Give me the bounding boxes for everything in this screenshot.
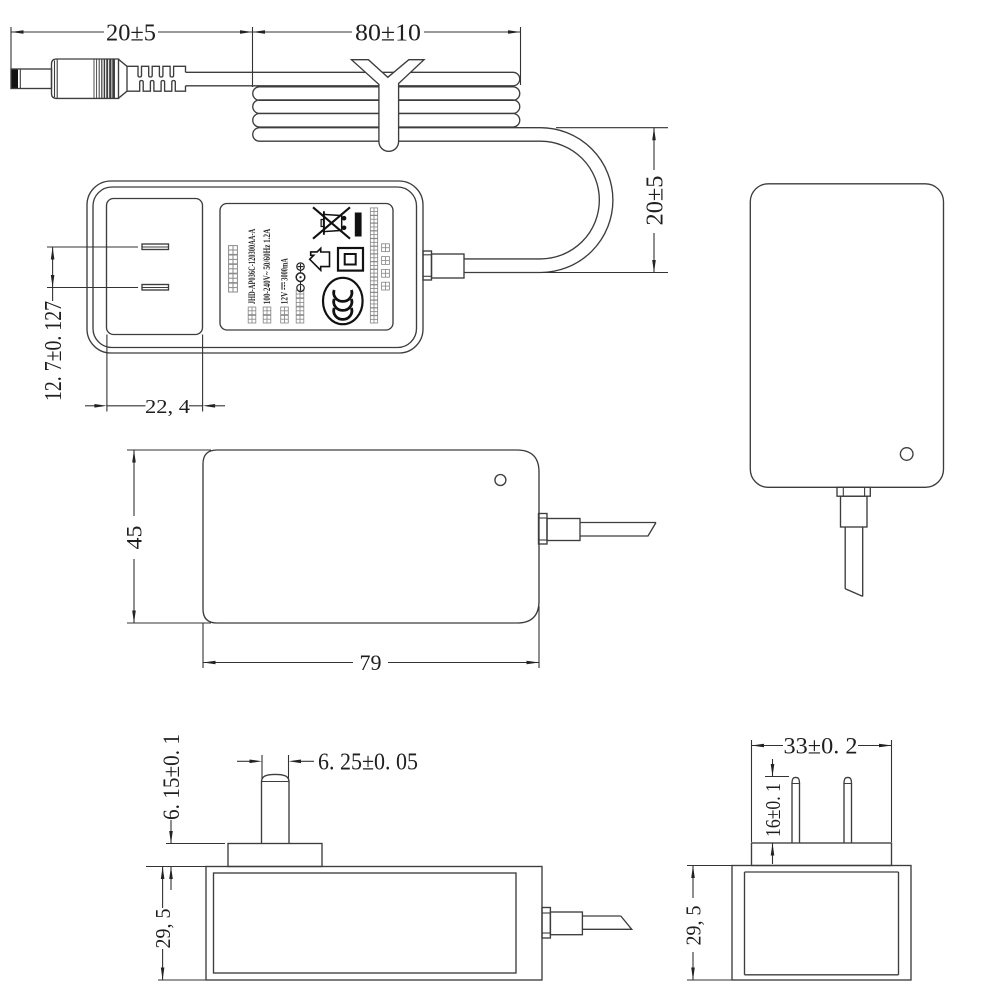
svg-text:45: 45: [122, 526, 147, 550]
svg-text:JHD-AP036C-120300AA-A: JHD-AP036C-120300AA-A: [247, 228, 257, 304]
svg-text:20±5: 20±5: [106, 20, 156, 46]
svg-text:29, 5: 29, 5: [681, 906, 705, 946]
svg-text:22, 4: 22, 4: [145, 396, 190, 418]
svg-text:12V: 12V: [280, 291, 290, 304]
svg-text:20±5: 20±5: [642, 176, 668, 226]
svg-text:79: 79: [360, 650, 382, 675]
svg-text:12. 7±0. 127: 12. 7±0. 127: [41, 301, 67, 401]
svg-text:3000mA: 3000mA: [280, 258, 290, 281]
svg-text:6. 15±0. 1: 6. 15±0. 1: [159, 734, 184, 820]
svg-text:80±10: 80±10: [355, 20, 421, 46]
svg-text:16±0. 1: 16±0. 1: [761, 783, 785, 837]
svg-text:6. 25±0. 05: 6. 25±0. 05: [318, 750, 418, 776]
svg-text:33±0. 2: 33±0. 2: [784, 734, 858, 760]
svg-text:100-240V~ 50/60Hz 1.2A: 100-240V~ 50/60Hz 1.2A: [262, 228, 272, 304]
svg-text:29, 5: 29, 5: [151, 909, 175, 949]
